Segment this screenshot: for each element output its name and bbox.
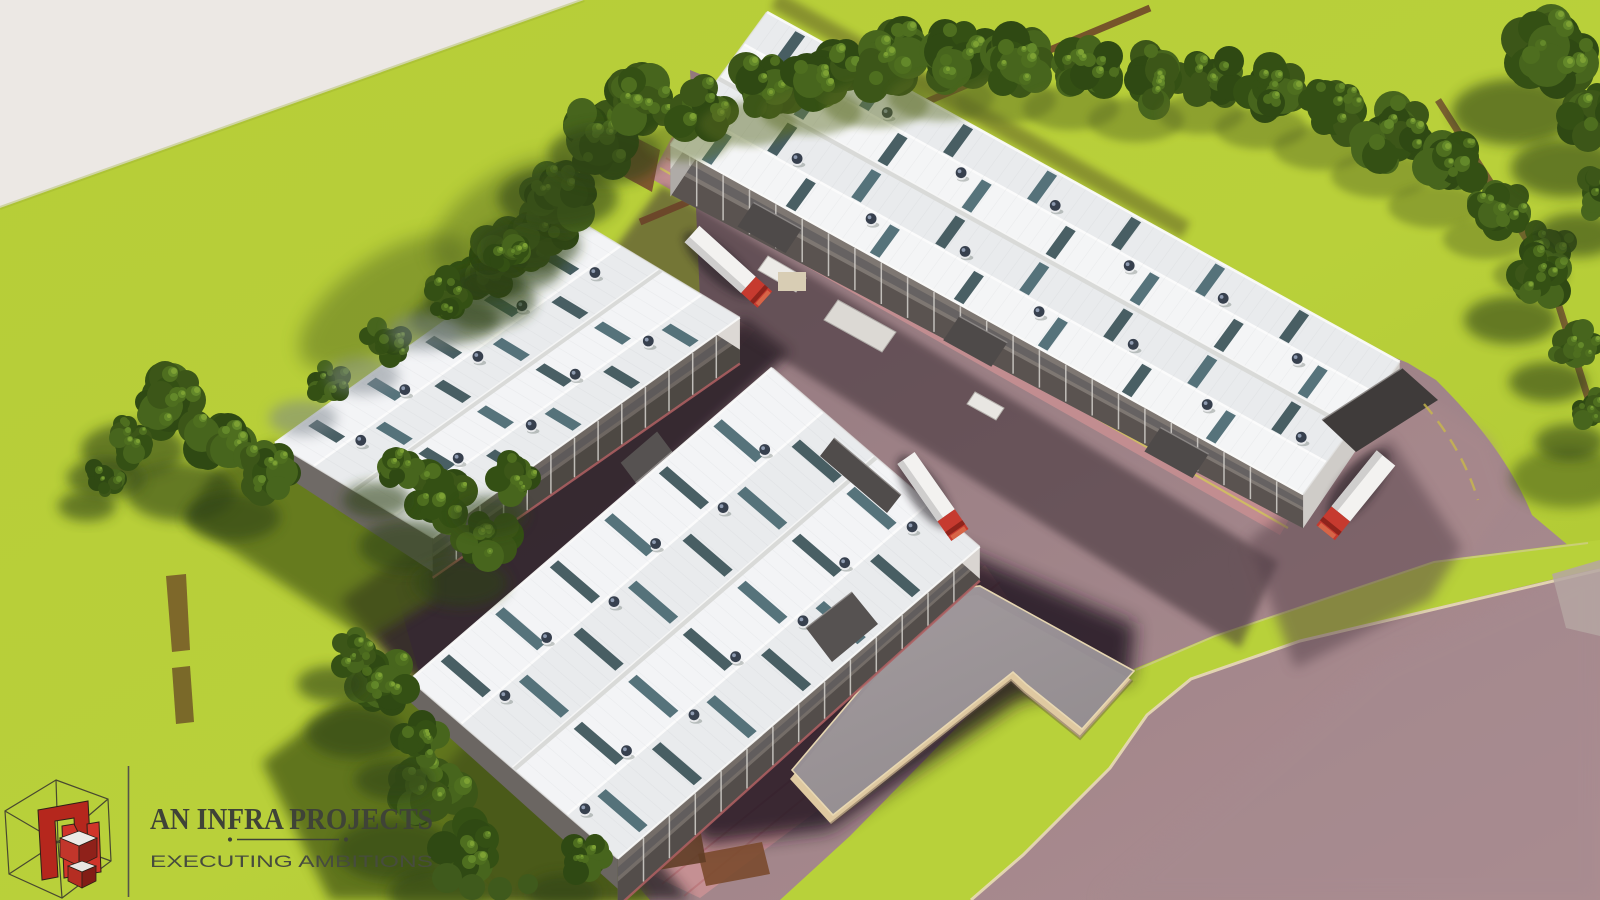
svg-text:EXECUTING AMBITIONS: EXECUTING AMBITIONS bbox=[150, 853, 433, 871]
svg-text:AN INFRA PROJECTS: AN INFRA PROJECTS bbox=[150, 801, 433, 836]
